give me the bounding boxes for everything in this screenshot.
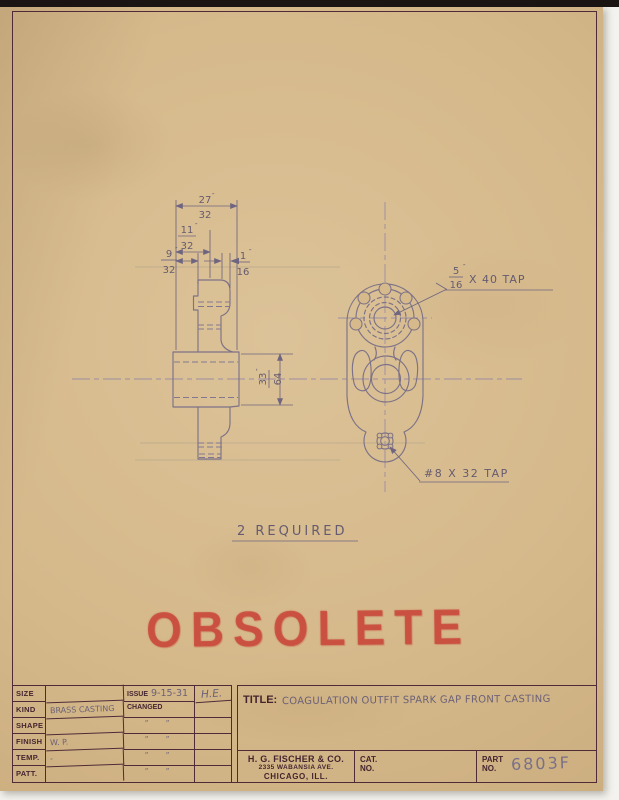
kidney-cutout-left	[352, 350, 371, 390]
svg-text:″: ″	[255, 368, 263, 371]
row-label-finish: FINISH	[13, 734, 46, 750]
svg-text:33: 33	[258, 373, 269, 386]
part-number: 6803F	[511, 753, 572, 774]
svg-text:32: 32	[163, 265, 176, 276]
blank-cell	[195, 718, 231, 734]
obsolete-stamp: OBSOLETE	[146, 597, 472, 659]
svg-text:X 40 TAP: X 40 TAP	[469, 273, 526, 286]
drawing-title: COAGULATION OUTFIT SPARK GAP FRONT CASTI…	[282, 694, 551, 707]
row-label-kind: KIND	[13, 702, 46, 718]
blank-cell	[195, 734, 231, 750]
changed-ditto-row2: ″″	[124, 734, 195, 750]
company-address: 2335 WABANSIA AVE.	[238, 764, 354, 772]
title-area: TITLE: COAGULATION OUTFIT SPARK GAP FRON…	[238, 686, 596, 751]
svg-text:#8 X 32 TAP: #8 X 32 TAP	[424, 467, 509, 480]
blank-cell	[195, 750, 231, 766]
title-label: TITLE:	[243, 694, 277, 706]
changed-label: CHANGED	[127, 704, 162, 711]
company-name: H. G. FISCHER & CO.	[238, 754, 354, 764]
svg-text:″: ″	[212, 192, 215, 200]
changed-cell: CHANGED	[124, 702, 195, 718]
scan-edge-shadow	[0, 0, 619, 7]
cat-no-cell: CAT. NO.	[355, 751, 477, 782]
svg-text:27: 27	[199, 195, 212, 206]
row-label-size: SIZE	[13, 686, 46, 702]
svg-text:16: 16	[237, 267, 250, 278]
engineering-drawing: 27 ″ 32 11 ″ 32 9 ″ 32 1 ″ 16 33 ″ 64	[0, 0, 619, 800]
blank-cell	[195, 766, 231, 782]
svg-text:5: 5	[453, 266, 459, 277]
dimension-width-27-32: 27 ″ 32	[199, 192, 215, 221]
svg-text:″: ″	[175, 246, 178, 254]
left-view	[173, 280, 239, 459]
company-row: H. G. FISCHER & CO. 2335 WABANSIA AVE. C…	[238, 751, 596, 782]
svg-text:″: ″	[249, 248, 252, 256]
quantity-note: 2 REQUIRED	[232, 524, 358, 541]
svg-text:11: 11	[181, 225, 194, 236]
issue-date: 9-15-31	[151, 688, 188, 699]
svg-text:32: 32	[181, 241, 194, 252]
svg-text:32: 32	[199, 210, 212, 221]
patt-value	[46, 765, 125, 784]
company-block: H. G. FISCHER & CO. 2335 WABANSIA AVE. C…	[238, 751, 355, 782]
svg-text:2 REQUIRED: 2 REQUIRED	[237, 524, 348, 539]
changed-ditto-row3: ″″	[124, 750, 195, 766]
svg-text:″: ″	[195, 222, 198, 230]
centerlines	[72, 202, 522, 492]
svg-text:1: 1	[240, 251, 246, 262]
row-label-patt: PATT.	[13, 766, 46, 782]
title-block-right-section: TITLE: COAGULATION OUTFIT SPARK GAP FRON…	[237, 685, 597, 783]
approval-initials: H.E.	[194, 685, 231, 703]
dimension-width-11-32: 11 ″ 32	[181, 222, 198, 252]
svg-text:9: 9	[166, 249, 172, 260]
tap-callout-top: 5 ″ 16 X 40 TAP	[394, 263, 553, 315]
row-label-shape: SHAPE	[13, 718, 46, 734]
blank-cell	[195, 702, 231, 718]
cat-label: CAT.	[360, 755, 476, 764]
row-label-temp: TEMP.	[13, 750, 46, 766]
svg-text:″: ″	[463, 263, 466, 271]
svg-text:64: 64	[273, 373, 284, 386]
cat-no-label: NO.	[360, 764, 476, 773]
issue-cell: ISSUE 9-15-31	[124, 686, 195, 702]
scanned-blueprint-page: 27 ″ 32 11 ″ 32 9 ″ 32 1 ″ 16 33 ″ 64	[0, 0, 619, 800]
part-no-cell: PART NO. 6803F	[477, 751, 596, 782]
changed-ditto-row1: ″″	[124, 718, 195, 734]
hidden-lines	[174, 302, 238, 458]
changed-ditto-row4: ″″	[124, 766, 195, 782]
svg-text:16: 16	[450, 280, 463, 291]
tap-callout-bottom: #8 X 32 TAP	[390, 447, 509, 482]
title-block-left-table: SIZE ISSUE 9-15-31 H.E. KIND BRASS CASTI…	[12, 685, 232, 783]
issue-label: ISSUE	[127, 691, 148, 698]
company-city: CHICAGO, ILL.	[238, 772, 354, 781]
